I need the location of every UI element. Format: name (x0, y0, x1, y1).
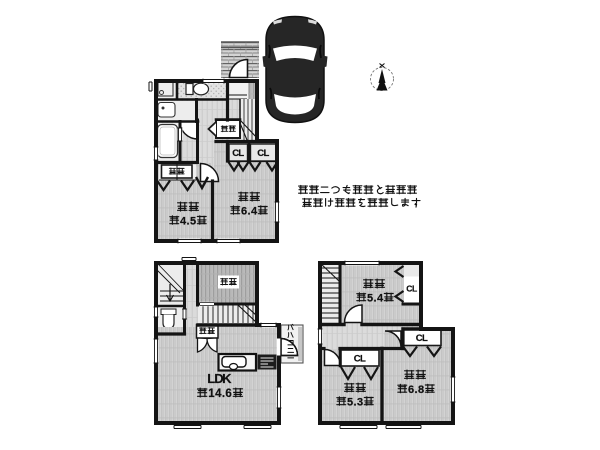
svg-text:5: 5 (367, 293, 373, 305)
svg-text:L: L (360, 353, 366, 364)
svg-text:3: 3 (357, 397, 363, 409)
svg-text:5: 5 (347, 397, 353, 409)
svg-text:6: 6 (225, 388, 231, 400)
svg-text:L: L (238, 148, 244, 159)
svg-text:L: L (422, 333, 428, 344)
svg-text:5: 5 (190, 216, 196, 228)
svg-text:6: 6 (241, 206, 247, 218)
svg-text:4: 4 (251, 206, 258, 218)
svg-text:6: 6 (408, 384, 414, 396)
svg-text:L: L (412, 284, 417, 294)
svg-text:L: L (263, 148, 269, 159)
svg-text:4: 4 (377, 293, 384, 305)
svg-text:8: 8 (418, 384, 424, 396)
svg-text:K: K (222, 371, 232, 386)
